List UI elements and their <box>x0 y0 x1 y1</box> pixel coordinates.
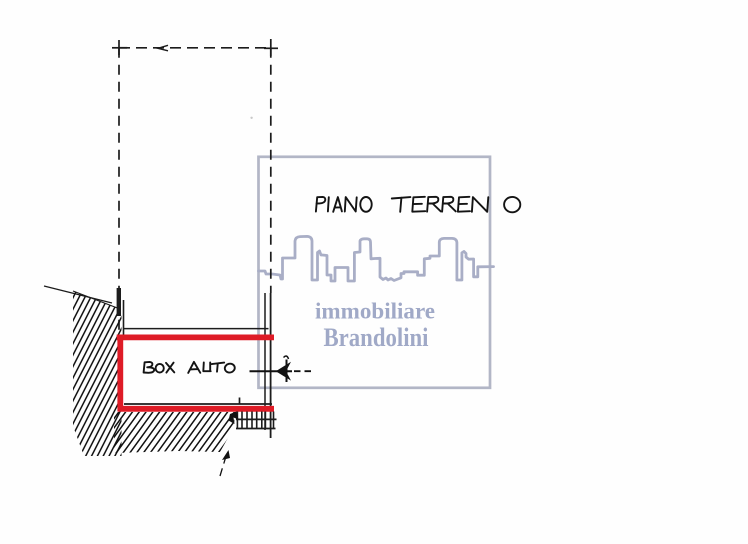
svg-text:immobiliare: immobiliare <box>315 299 435 324</box>
svg-text:Brandolini: Brandolini <box>324 323 429 352</box>
